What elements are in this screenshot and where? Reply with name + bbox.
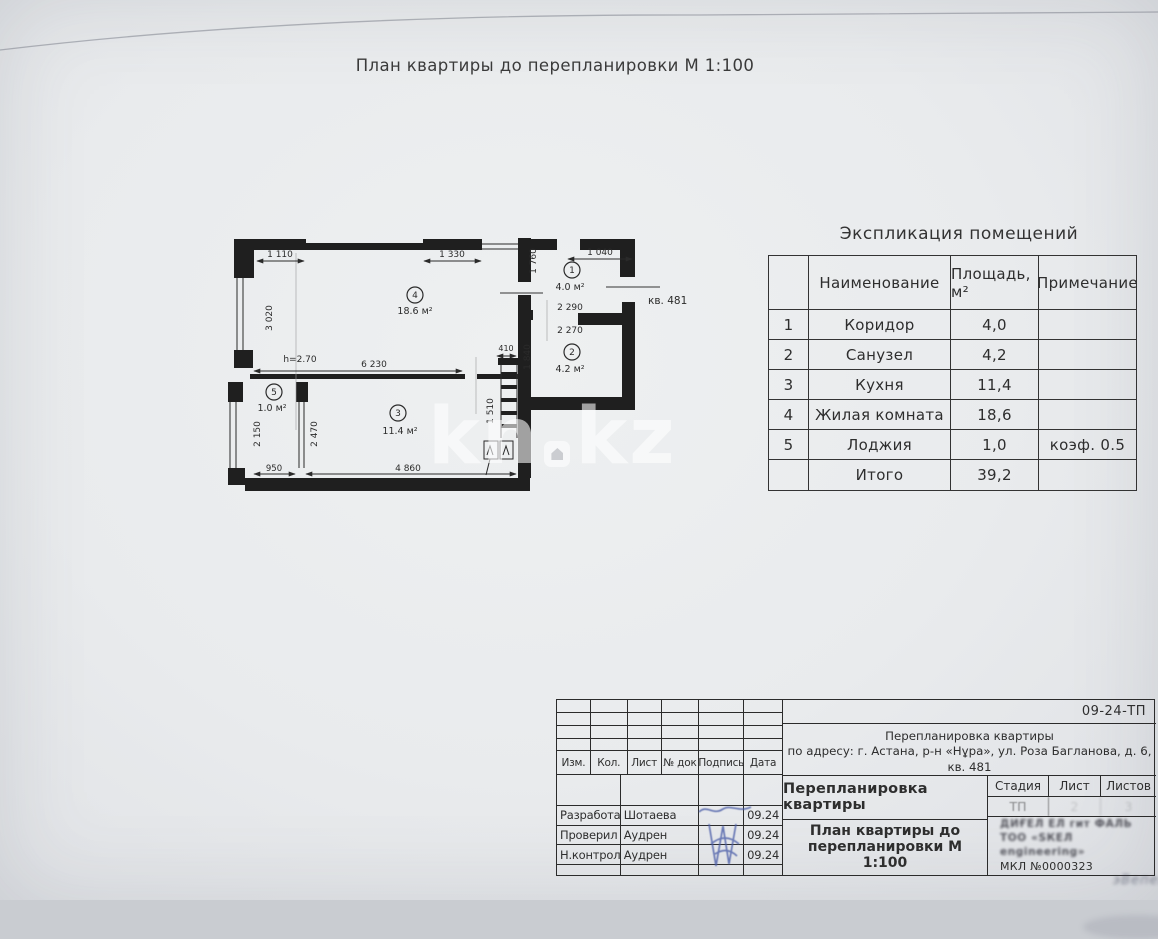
document-titles: Перепланировка квартиры План квартиры до… [783,776,988,875]
project-line3: кв. 481 [783,760,1156,775]
dim-1330: 1 330 [439,250,465,260]
cell-number: 5 [769,430,809,460]
cell-area: 18,6 [951,400,1039,430]
dim-2150: 2 150 [253,421,263,447]
col-doc: № док [662,751,700,774]
table-row: 2 Санузел 4,2 [769,340,1136,370]
cell-area: 1,0 [951,430,1039,460]
cell-note: коэф. 0.5 [1039,430,1136,460]
staff-name: Шотаева [621,806,700,825]
room3-area: 11.4 м² [382,426,417,437]
apartment-number-label: кв. 481 [648,295,687,307]
page-title: План квартиры до перепланировки М 1:100 [330,56,780,75]
cell-number [769,460,809,490]
cell-note [1039,370,1136,400]
stage-label: Стадия [988,776,1049,796]
header-number [769,256,809,310]
room4-number: 4 [412,291,418,301]
watermark-kn: kn [428,398,539,476]
sheets-value: 3 [1101,797,1156,816]
document-number: 09-24-ТП [783,700,1156,724]
stage-values-row: ТП 2 3 [988,797,1156,817]
explication-table: Наименование Площадь, м² Примечание 1 Ко… [768,255,1137,491]
cell-area: 4,2 [951,340,1039,370]
stamp-smudge: эВепехиш [1113,873,1158,888]
columns-header-row: Изм. Кол. Лист № док Подпись Дата [557,751,782,775]
stage-and-org: Стадия Лист Листов ТП 2 3 ДИҒЕЛ ЕЛ гит Ф… [988,776,1156,875]
empty-row [557,700,782,713]
dim-1110: 1 110 [267,250,293,260]
room5-number: 5 [271,388,277,398]
dim-2470: 2 470 [310,421,320,447]
project-line2: по адресу: г. Астана, р-н «Нұра», ул. Ро… [783,744,1156,759]
empty-row [557,739,782,752]
staff-name: Аудрен [621,845,700,864]
room4-area: 18.6 м² [397,306,432,317]
watermark-kz: kz [575,398,676,476]
col-list: Лист [628,751,662,774]
table-row: 1 Коридор 4,0 [769,310,1136,340]
stage-value: ТП [988,797,1049,816]
cell-area: 39,2 [951,460,1039,490]
table-row-total: Итого 39,2 [769,460,1136,490]
cell-number: 2 [769,340,809,370]
header-name: Наименование [809,256,951,310]
room2-area: 4.2 м² [555,364,584,375]
org-stamp-line2: ТОО «SКЕЛ engineering» [1000,831,1156,859]
explication-header-row: Наименование Площадь, м² Примечание [769,256,1136,310]
explication-section: Экспликация помещений Наименование Площа… [768,224,1136,491]
title-block-right: 09-24-ТП Перепланировка квартиры по адре… [783,700,1156,875]
cell-name: Итого [809,460,951,490]
room2-number: 2 [569,348,575,358]
cell-name: Лоджия [809,430,951,460]
stamp-smudge-blob [1083,915,1158,939]
room1-number: 1 [569,266,575,276]
explication-title: Экспликация помещений [782,224,1136,244]
col-sign: Подпись [699,751,744,774]
kn-kz-watermark: kn kz [428,398,677,476]
cell-name: Санузел [809,340,951,370]
sheet-value: 2 [1049,797,1101,816]
cell-number: 4 [769,400,809,430]
cell-area: 11,4 [951,370,1039,400]
cell-name: Жилая комната [809,400,951,430]
dim-4860: 4 860 [395,464,421,474]
cell-note [1039,310,1136,340]
dim-6230: 6 230 [361,360,387,370]
cell-note [1039,460,1136,490]
empty-row [557,713,782,726]
table-row: 3 Кухня 11,4 [769,370,1136,400]
cell-note [1039,400,1136,430]
empty-row [557,726,782,739]
doc-title-upper: Перепланировка квартиры [783,776,987,820]
staff-role: Н.контроль [557,845,621,864]
header-note: Примечание [1039,256,1136,310]
organization-cell: ДИҒЕЛ ЕЛ гит ФАЛЬ ТОО «SКЕЛ engineering»… [988,817,1156,875]
kn-kz-logo-icon [544,441,570,467]
dim-950: 950 [266,464,282,474]
dim-1040: 1 040 [587,248,613,258]
cell-number: 3 [769,370,809,400]
org-stamp-line1: ДИҒЕЛ ЕЛ гит ФАЛЬ [1000,817,1156,831]
staff-role: Разработал [557,806,621,825]
cell-number: 1 [769,310,809,340]
table-row: 4 Жилая комната 18,6 [769,400,1136,430]
cell-note [1039,340,1136,370]
title-block: Изм. Кол. Лист № док Подпись Дата Разраб… [556,699,1155,876]
staff-role: Проверил [557,826,621,845]
room1-area: 4.0 м² [555,282,584,293]
col-kol: Кол. [591,751,628,774]
cell-name: Кухня [809,370,951,400]
dim-1760: 1 760 [529,248,539,274]
col-izm: Изм. [557,751,591,774]
room5-area: 1.0 м² [257,403,286,414]
dim-2270: 2 270 [557,326,583,336]
project-line1: Перепланировка квартиры [783,729,1156,744]
dim-3020: 3 020 [265,305,275,331]
dim-2290: 2 290 [557,303,583,313]
doc-title-lower: План квартиры до перепланировки М 1:100 [783,820,987,875]
cell-name: Коридор [809,310,951,340]
ceiling-height-label: h=2.70 [283,355,317,365]
dim-1840: 1 840 [523,344,533,370]
signatures-overlay [695,800,757,874]
sheets-label: Листов [1101,776,1156,796]
stage-header-row: Стадия Лист Листов [988,776,1156,797]
cell-area: 4,0 [951,310,1039,340]
title-block-lower: Перепланировка квартиры План квартиры до… [783,776,1156,875]
project-address: Перепланировка квартиры по адресу: г. Ас… [783,724,1156,775]
col-date: Дата [744,751,782,774]
dim-410: 410 [498,344,513,353]
room3-number: 3 [395,409,401,419]
staff-name: Аудрен [621,826,700,845]
table-row: 5 Лоджия 1,0 коэф. 0.5 [769,430,1136,460]
sheet-label: Лист [1049,776,1101,796]
header-area: Площадь, м² [951,256,1039,310]
